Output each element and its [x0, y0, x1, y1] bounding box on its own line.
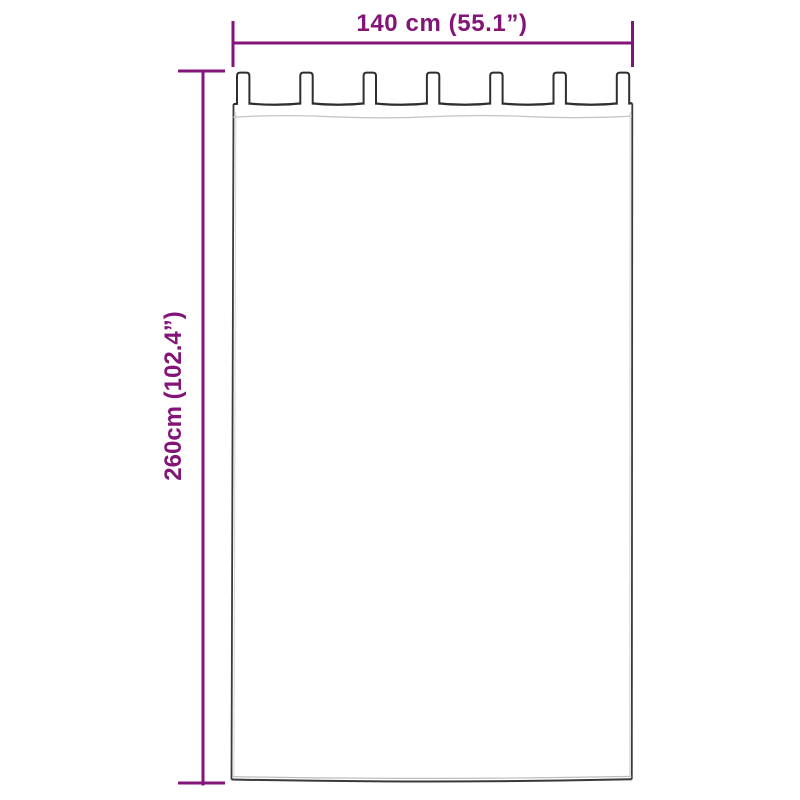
svg-text:140 cm (55.1”): 140 cm (55.1”) — [356, 10, 527, 37]
svg-text:260cm (102.4”): 260cm (102.4”) — [160, 311, 187, 480]
